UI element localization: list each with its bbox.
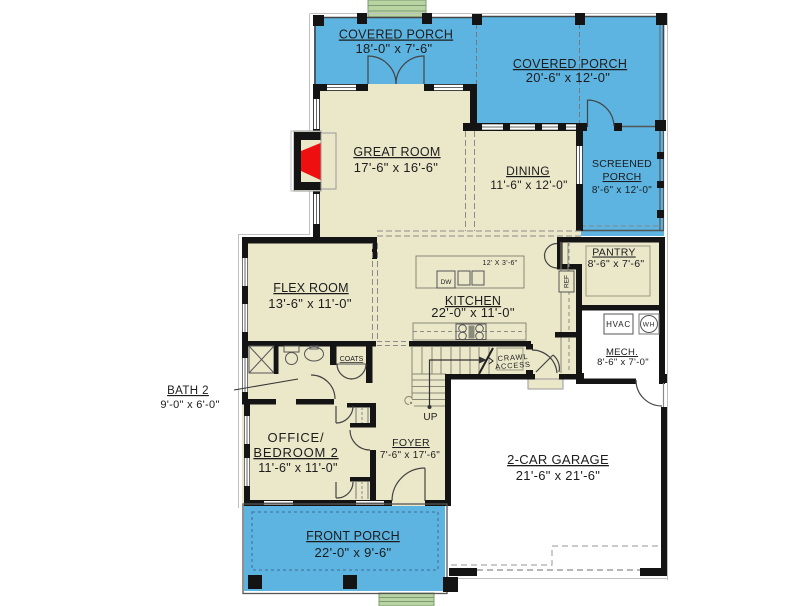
svg-text:COATS: COATS (340, 356, 364, 363)
svg-text:HVAC: HVAC (606, 320, 631, 329)
svg-text:18'-0" x 7'-6": 18'-0" x 7'-6" (356, 41, 433, 56)
svg-text:11'-6" x 11'-0": 11'-6" x 11'-0" (258, 461, 338, 475)
svg-text:PANTRY: PANTRY (592, 247, 635, 259)
svg-text:8'-6" x 12'-0": 8'-6" x 12'-0" (592, 185, 652, 196)
svg-text:SCREENED: SCREENED (592, 158, 652, 170)
svg-text:DINING: DINING (506, 164, 550, 178)
svg-text:COVERED PORCH: COVERED PORCH (339, 28, 453, 42)
svg-text:8'-6" x 7'-0": 8'-6" x 7'-0" (597, 357, 649, 368)
svg-text:8'-6" x 7'-6": 8'-6" x 7'-6" (588, 258, 645, 270)
svg-text:13'-6" x 11'-0": 13'-6" x 11'-0" (268, 296, 352, 311)
svg-text:FRONT PORCH: FRONT PORCH (306, 529, 400, 543)
svg-text:PORCH: PORCH (603, 171, 642, 183)
svg-text:OFFICE/: OFFICE/ (268, 430, 325, 445)
svg-text:BEDROOM 2: BEDROOM 2 (253, 445, 338, 460)
svg-text:COVERED PORCH: COVERED PORCH (513, 57, 627, 71)
svg-text:20'-6" x 12'-0": 20'-6" x 12'-0" (526, 70, 611, 85)
svg-text:FOYER: FOYER (392, 437, 430, 449)
svg-text:11'-6" x 12'-0": 11'-6" x 12'-0" (490, 178, 567, 192)
svg-text:BATH 2: BATH 2 (167, 385, 209, 397)
svg-text:22'-0" x 11'-0": 22'-0" x 11'-0" (431, 305, 515, 320)
svg-text:21'-6" x 21'-6": 21'-6" x 21'-6" (516, 468, 601, 483)
svg-text:REF: REF (564, 275, 571, 288)
svg-text:22'-0" x 9'-6": 22'-0" x 9'-6" (315, 545, 392, 560)
svg-text:FLEX ROOM: FLEX ROOM (273, 281, 348, 295)
svg-text:9'-0" x 6'-0": 9'-0" x 6'-0" (160, 399, 219, 411)
svg-text:7'-6" x 17'-6": 7'-6" x 17'-6" (380, 450, 440, 461)
svg-text:UP: UP (423, 412, 437, 423)
svg-text:12' X 3'-6": 12' X 3'-6" (483, 260, 518, 267)
svg-text:DW: DW (441, 279, 453, 286)
svg-text:17'-6" x 16'-6": 17'-6" x 16'-6" (354, 160, 439, 175)
svg-text:WH: WH (643, 322, 655, 329)
svg-text:2-CAR GARAGE: 2-CAR GARAGE (507, 452, 609, 467)
svg-text:GREAT ROOM: GREAT ROOM (353, 145, 440, 159)
